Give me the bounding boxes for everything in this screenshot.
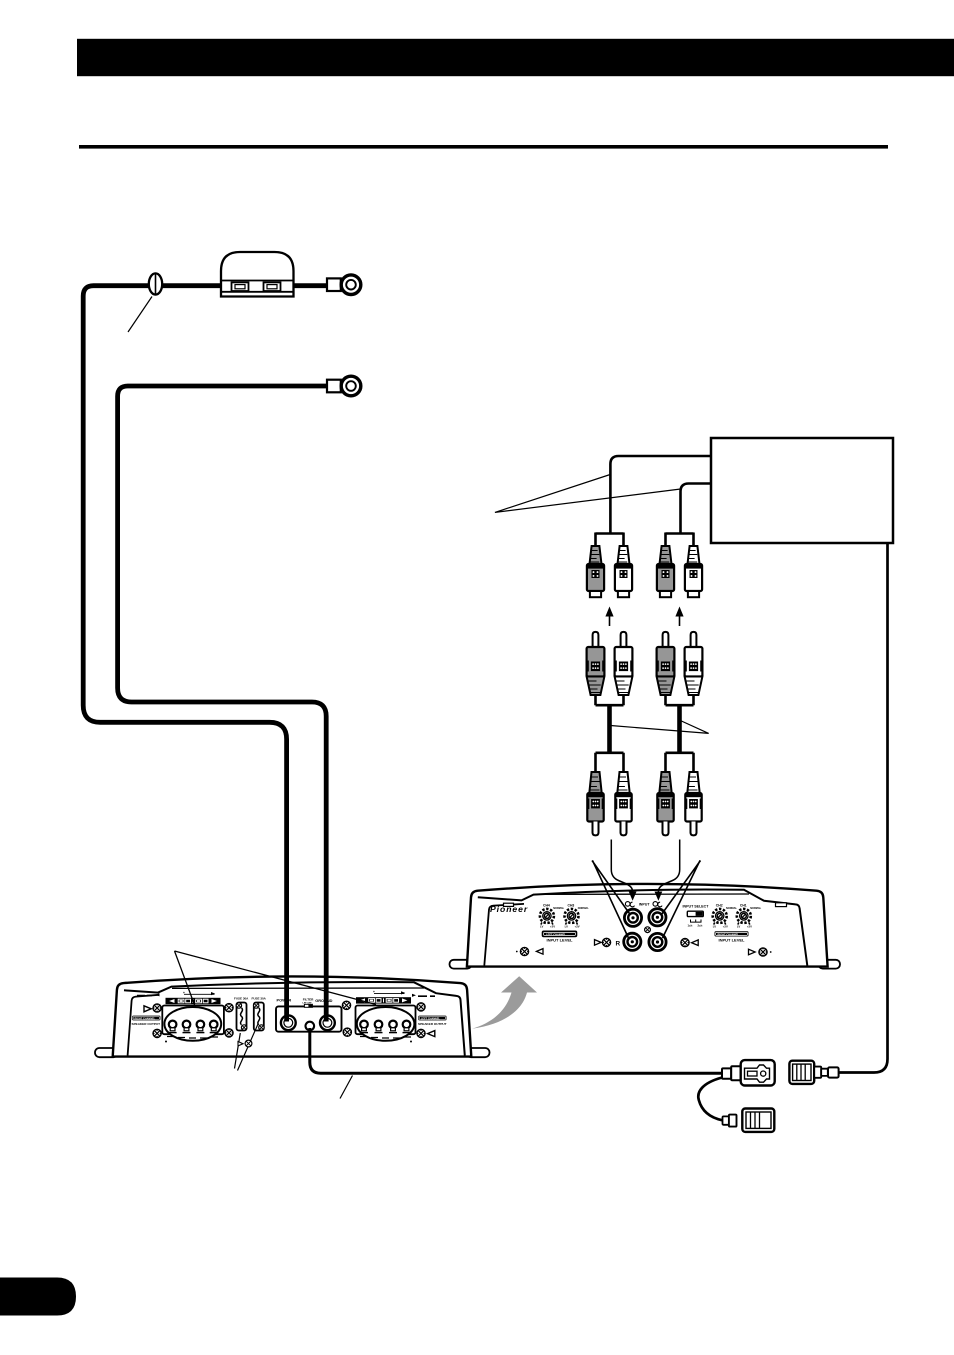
svg-text:POWER: POWER <box>277 998 292 1003</box>
svg-text:RIGHT CHANNEL: RIGHT CHANNEL <box>718 932 740 936</box>
svg-text:R: R <box>616 941 621 948</box>
svg-text:SPEAKER OUTPUT: SPEAKER OUTPUT <box>132 1022 161 1026</box>
svg-text:LV: LV <box>737 924 741 928</box>
svg-text:INPUT SELECT: INPUT SELECT <box>683 904 710 908</box>
svg-text:LV: LV <box>713 924 717 928</box>
svg-text:SPEAKER OUTPUT: SPEAKER OUTPUT <box>418 1022 447 1026</box>
svg-text:NORMAL: NORMAL <box>726 907 737 910</box>
svg-text:2ch: 2ch <box>698 924 703 928</box>
svg-text:NORMAL: NORMAL <box>750 907 761 910</box>
svg-text:INPUT: INPUT <box>639 903 651 907</box>
svg-text:LV: LV <box>565 924 569 928</box>
svg-text:CH4: CH4 <box>543 903 550 907</box>
svg-text:+2V: +2V <box>550 924 555 928</box>
svg-text:FUSE 30A: FUSE 30A <box>234 997 249 1001</box>
svg-text:+2V: +2V <box>723 924 728 928</box>
svg-text:+: + <box>183 991 185 995</box>
svg-text:NORMAL: NORMAL <box>578 907 589 910</box>
svg-text:CH2: CH2 <box>716 903 723 907</box>
svg-text:FUSE 30A: FUSE 30A <box>252 997 267 1001</box>
svg-text:+2V: +2V <box>747 924 752 928</box>
svg-text:INPUT LEVEL: INPUT LEVEL <box>719 938 746 943</box>
svg-text:NORMAL: NORMAL <box>553 907 564 910</box>
svg-text:RIGHT CHANNEL: RIGHT CHANNEL <box>135 1017 156 1020</box>
svg-text:1ch: 1ch <box>688 924 693 928</box>
svg-text:+2V: +2V <box>575 924 580 928</box>
svg-text:CH3: CH3 <box>568 903 575 907</box>
svg-text:FILTER: FILTER <box>303 998 314 1002</box>
svg-text:INPUT LEVEL: INPUT LEVEL <box>547 938 574 943</box>
svg-text:+: + <box>373 990 375 994</box>
svg-text:CH1: CH1 <box>740 903 747 907</box>
svg-text:LV: LV <box>540 924 544 928</box>
svg-text:LEFT CHANNEL: LEFT CHANNEL <box>421 1017 441 1020</box>
svg-text:LEFT CHANNEL: LEFT CHANNEL <box>546 932 566 936</box>
